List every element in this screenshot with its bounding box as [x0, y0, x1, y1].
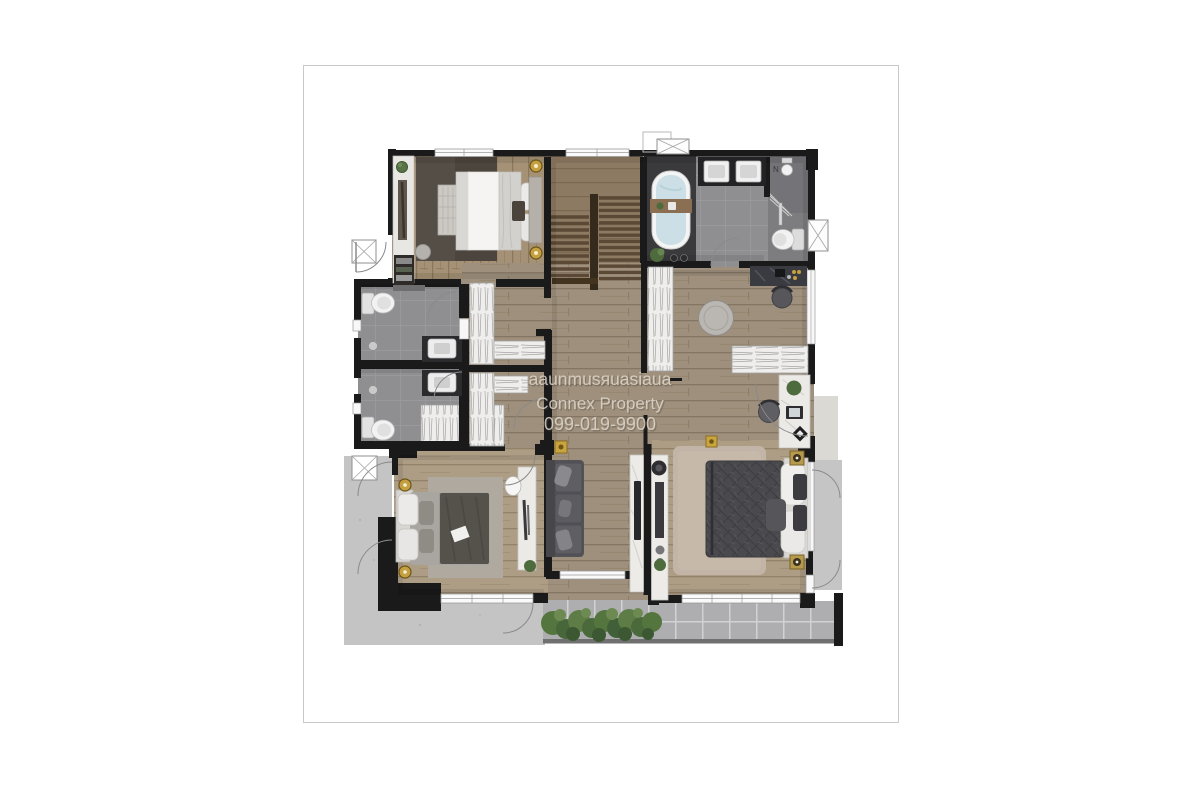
svg-text:099-019-9900: 099-019-9900 [544, 414, 656, 434]
svg-text:N: N [773, 165, 779, 174]
svg-text:Connex Property: Connex Property [536, 394, 664, 413]
svg-text:aaunmusяuasiaua: aaunmusяuasiaua [529, 369, 672, 389]
